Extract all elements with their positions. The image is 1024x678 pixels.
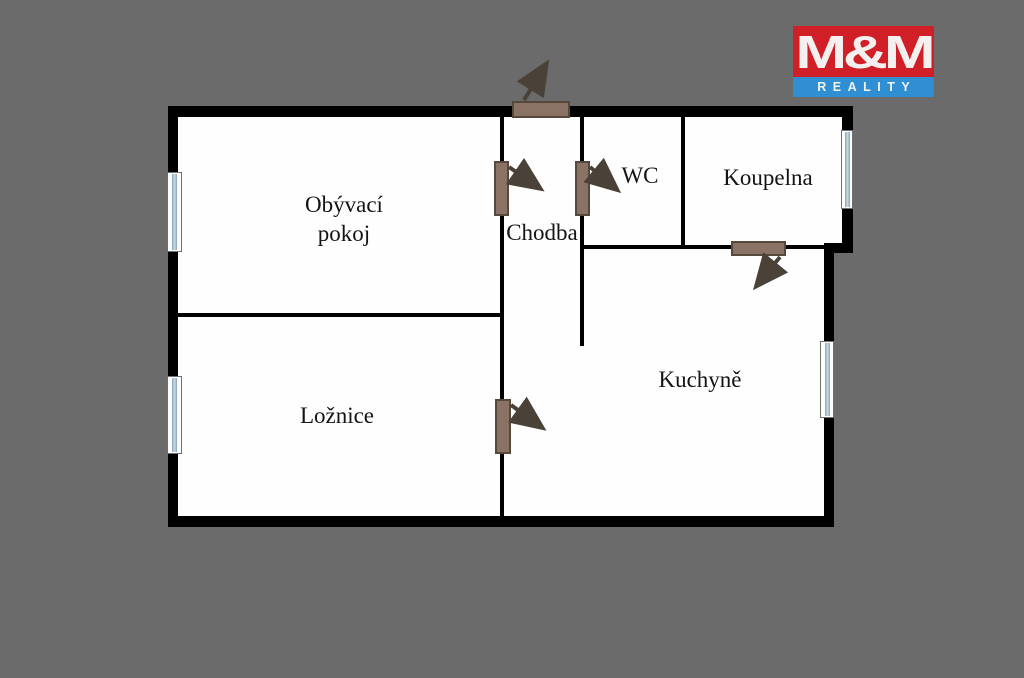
wall-kitchen-top: [582, 245, 824, 249]
outer-wall-top: [168, 106, 853, 117]
room-label-livingroom-line2: pokoj: [244, 219, 444, 248]
logo-tagline-text: REALITY: [811, 80, 916, 94]
outer-wall-left: [168, 106, 178, 527]
wall-livingroom-bedroom: [178, 313, 502, 317]
room-label-kitchen: Kuchyně: [625, 365, 775, 394]
window-kitchen-icon: [820, 341, 834, 418]
room-label-bathroom: Koupelna: [693, 163, 843, 192]
livingroom-door-icon: [494, 161, 509, 216]
room-label-hallway: Chodba: [492, 218, 592, 247]
brand-logo: M&M REALITY: [793, 26, 934, 97]
outer-wall-bottom: [168, 516, 834, 527]
logo-brand-block: M&M: [793, 26, 934, 77]
floorplan-canvas: Obývací pokoj Chodba WC Koupelna Ložnice…: [0, 0, 1024, 678]
entrance-door-icon: [512, 101, 570, 118]
logo-tagline-block: REALITY: [793, 77, 934, 97]
logo-brand-text: M&M: [795, 26, 931, 77]
entrance-door-swing-arrow: [524, 66, 545, 100]
room-label-wc: WC: [590, 161, 690, 190]
wc-door-icon: [575, 161, 590, 216]
room-label-livingroom: Obývací pokoj: [244, 190, 444, 248]
room-label-livingroom-line1: Obývací: [244, 190, 444, 219]
window-bedroom-icon: [167, 376, 182, 454]
bedroom-door-icon: [495, 399, 511, 454]
window-livingroom-icon: [167, 172, 182, 252]
room-label-bedroom: Ložnice: [262, 401, 412, 430]
bathroom-door-icon: [731, 241, 786, 256]
